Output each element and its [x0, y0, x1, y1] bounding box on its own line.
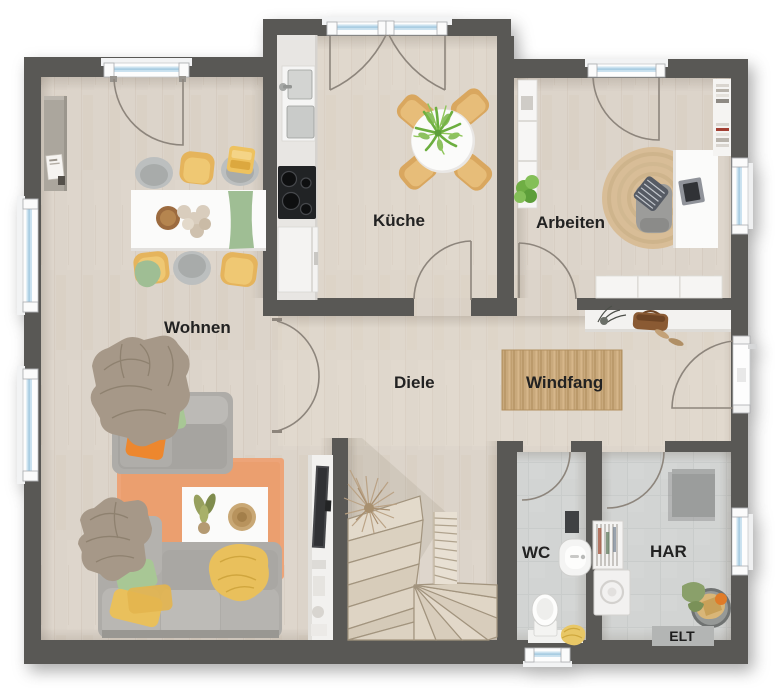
svg-text:Küche: Küche [373, 211, 425, 230]
svg-text:Windfang: Windfang [526, 373, 603, 392]
svg-text:Arbeiten: Arbeiten [536, 213, 605, 232]
svg-text:Diele: Diele [394, 373, 435, 392]
svg-text:Wohnen: Wohnen [164, 318, 231, 337]
svg-text:ELT: ELT [669, 628, 695, 644]
svg-text:WC: WC [522, 543, 550, 562]
svg-text:HAR: HAR [650, 542, 687, 561]
